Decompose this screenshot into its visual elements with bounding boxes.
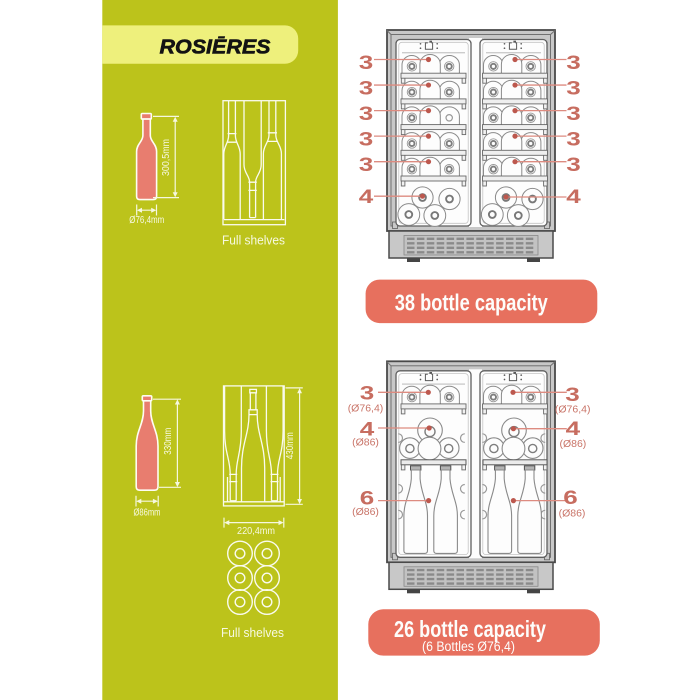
svg-text:3: 3 bbox=[566, 78, 581, 100]
svg-text:3: 3 bbox=[359, 78, 374, 100]
svg-text:(Ø76,4): (Ø76,4) bbox=[555, 404, 591, 416]
svg-text:3: 3 bbox=[359, 103, 374, 125]
svg-text:Ø86mm: Ø86mm bbox=[134, 506, 161, 518]
svg-text:3: 3 bbox=[566, 129, 581, 151]
svg-text:(Ø86): (Ø86) bbox=[559, 438, 586, 450]
svg-text:3: 3 bbox=[359, 52, 374, 74]
svg-text:220,4mm: 220,4mm bbox=[237, 525, 275, 537]
svg-text:4: 4 bbox=[566, 418, 581, 440]
svg-text:3: 3 bbox=[566, 52, 581, 74]
svg-text:300,5mm: 300,5mm bbox=[160, 139, 172, 176]
svg-text:(Ø76,4): (Ø76,4) bbox=[348, 403, 384, 415]
svg-text:3: 3 bbox=[359, 129, 374, 151]
svg-text:(Ø86): (Ø86) bbox=[352, 437, 379, 449]
svg-text:(6 Bottles Ø76,4): (6 Bottles Ø76,4) bbox=[422, 639, 515, 654]
svg-text:4: 4 bbox=[566, 186, 581, 208]
svg-text:430mm: 430mm bbox=[284, 432, 296, 459]
svg-text:4: 4 bbox=[359, 186, 374, 208]
svg-text:38 bottle capacity: 38 bottle capacity bbox=[395, 290, 548, 316]
svg-text:(Ø86): (Ø86) bbox=[352, 506, 379, 518]
svg-text:3: 3 bbox=[566, 154, 581, 176]
svg-text:3: 3 bbox=[359, 154, 374, 176]
svg-text:Ø76,4mm: Ø76,4mm bbox=[129, 214, 164, 226]
svg-text:Full shelves: Full shelves bbox=[222, 232, 285, 247]
svg-text:330mm: 330mm bbox=[162, 428, 174, 455]
svg-text:3: 3 bbox=[360, 383, 375, 405]
svg-text:6: 6 bbox=[563, 487, 578, 509]
svg-text:Full shelves: Full shelves bbox=[221, 625, 284, 640]
svg-text:(Ø86): (Ø86) bbox=[559, 507, 586, 519]
svg-text:3: 3 bbox=[566, 103, 581, 125]
svg-text:ROSIĒRES: ROSIĒRES bbox=[160, 36, 271, 59]
